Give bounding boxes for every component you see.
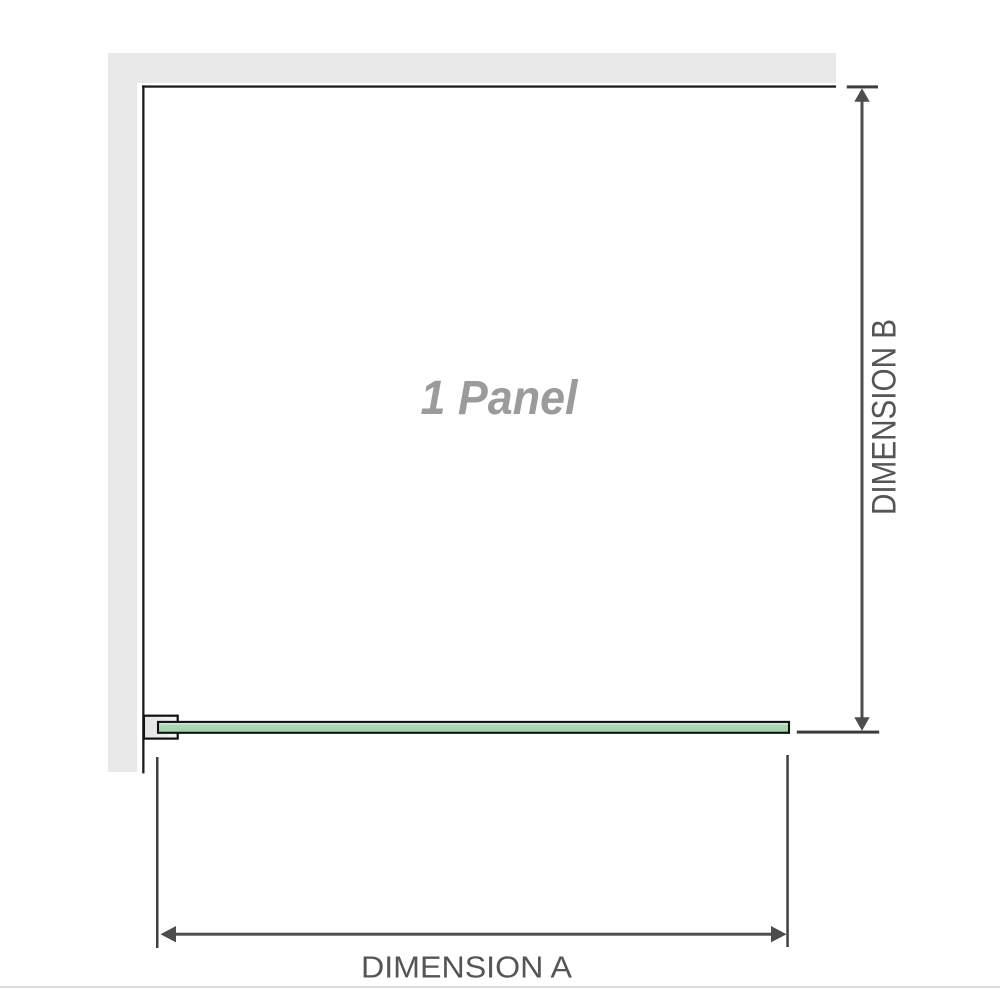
svg-text:1 Panel: 1 Panel bbox=[421, 372, 580, 425]
svg-text:DIMENSION B: DIMENSION B bbox=[866, 319, 904, 515]
svg-text:DIMENSION A: DIMENSION A bbox=[361, 950, 572, 985]
